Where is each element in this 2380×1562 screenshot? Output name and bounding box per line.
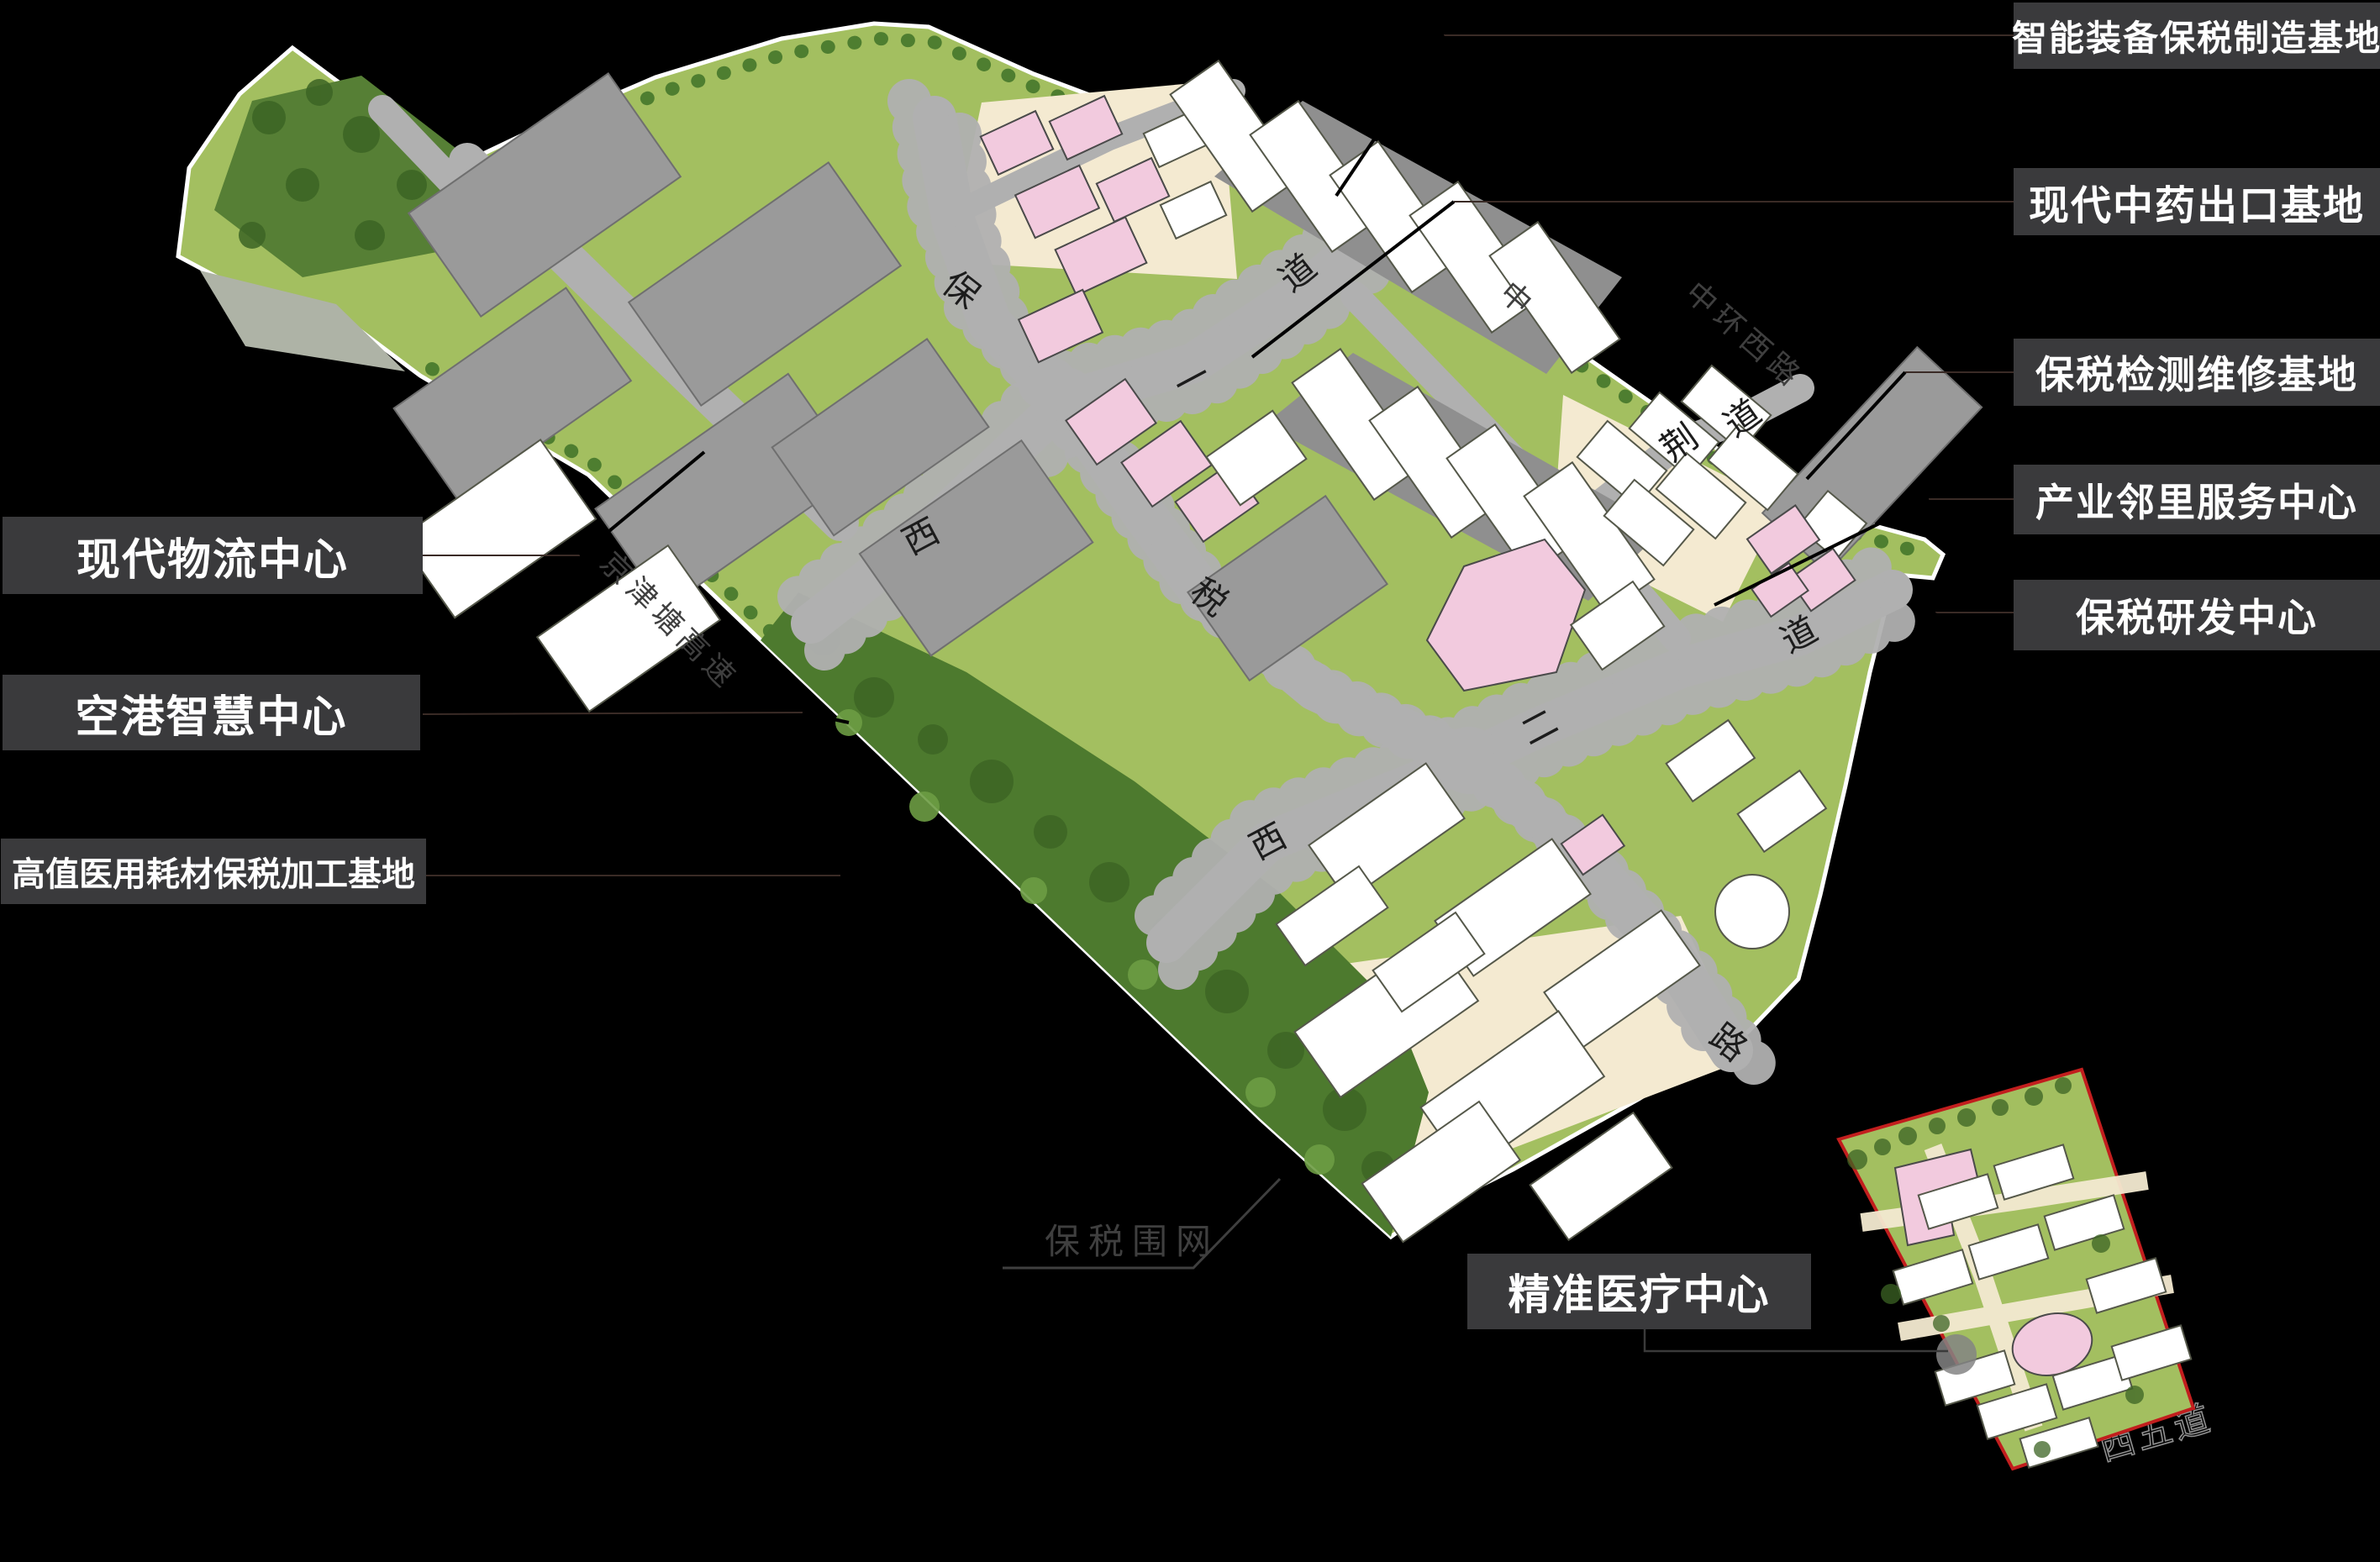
callout-label: 智能装备保税制造基地	[2012, 10, 2380, 61]
callout-neighborhood-service: 产业邻里服务中心	[2014, 465, 2380, 534]
se-parcel-edge-circle	[1936, 1334, 1977, 1375]
leader-airport-smart	[423, 713, 803, 714]
callout-bonded-testing: 保税检测维修基地	[2014, 339, 2380, 406]
callout-label: 保税检测维修基地	[2035, 344, 2358, 400]
callout-modern-logistics: 现代物流中心	[3, 517, 423, 594]
callout-label: 精准医疗中心	[1509, 1261, 1771, 1322]
callout-label: 高值医用耗材保税加工基地	[12, 847, 415, 896]
callout-label: 产业邻里服务中心	[2035, 472, 2358, 528]
callout-airport-smart: 空港智慧中心	[3, 675, 420, 750]
callout-tcm-export: 现代中药出口基地	[2014, 168, 2380, 235]
callout-medical-consumables: 高值医用耗材保税加工基地	[1, 839, 426, 904]
callout-label: 现代物流中心	[76, 524, 349, 587]
bonded-fence-label: 保税围网	[1045, 1221, 1219, 1262]
callout-precision-medical: 精准医疗中心	[1467, 1254, 1811, 1329]
callout-label: 现代中药出口基地	[2029, 172, 2365, 231]
se-parcel	[1839, 1070, 2193, 1469]
callout-intelligent-equipment: 智能装备保税制造基地	[2014, 3, 2380, 69]
ring-road-label: 中环西路	[1678, 276, 1810, 397]
masterplan-infographic: 保 税 路 西 一 道 西 二 道 荆 道 京津塘高速 中环西路 中 西五道 保…	[0, 0, 2380, 1562]
callout-label: 空港智慧中心	[75, 681, 347, 744]
callout-label: 保税研发中心	[2076, 587, 2318, 643]
callout-bonded-rd: 保税研发中心	[2014, 580, 2380, 650]
bonded-fence-callout: 保税围网	[1003, 1179, 1280, 1268]
